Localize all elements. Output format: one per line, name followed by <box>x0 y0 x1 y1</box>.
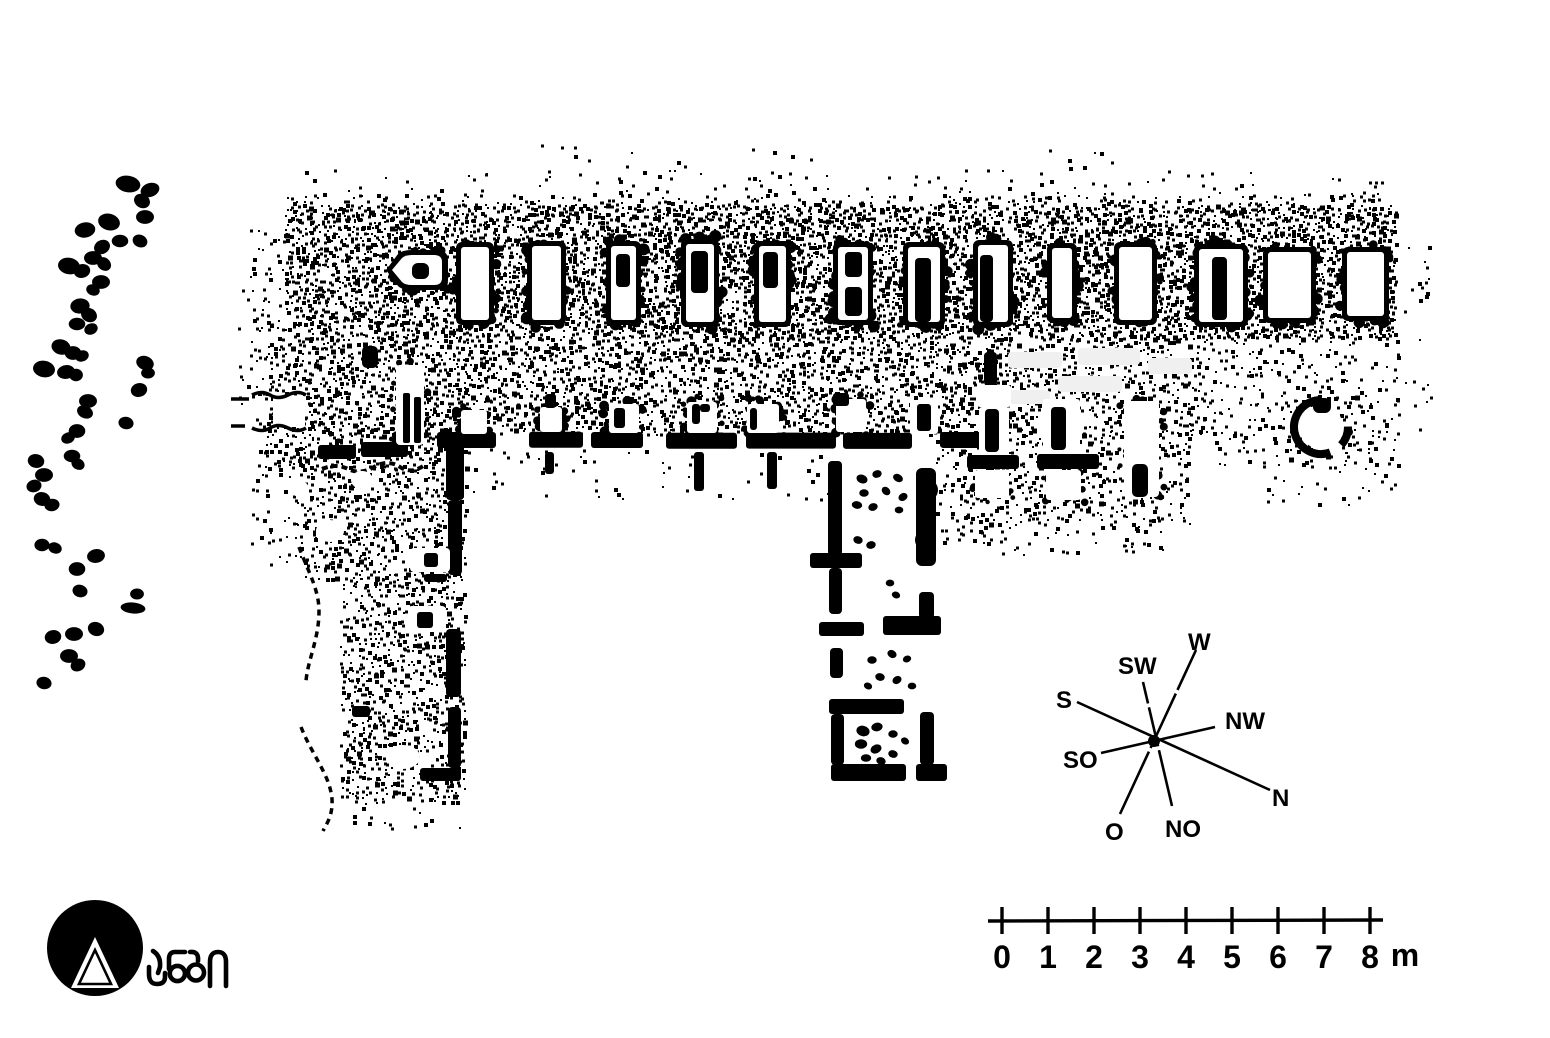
svg-text:NO: NO <box>1165 816 1201 843</box>
svg-text:5: 5 <box>1223 939 1241 975</box>
svg-text:O: O <box>1105 819 1124 846</box>
svg-text:1: 1 <box>1039 939 1057 975</box>
svg-text:SW: SW <box>1118 653 1157 680</box>
svg-text:2: 2 <box>1085 939 1103 975</box>
svg-text:3: 3 <box>1131 939 1149 975</box>
svg-text:S: S <box>1056 687 1072 714</box>
svg-text:NW: NW <box>1225 708 1265 735</box>
svg-text:0: 0 <box>993 939 1011 975</box>
svg-text:6: 6 <box>1269 939 1287 975</box>
svg-text:7: 7 <box>1315 939 1333 975</box>
svg-text:W: W <box>1188 629 1211 656</box>
svg-text:8: 8 <box>1361 939 1379 975</box>
svg-text:4: 4 <box>1177 939 1195 975</box>
svg-text:N: N <box>1272 785 1289 812</box>
svg-text:m: m <box>1391 937 1419 973</box>
svg-text:SO: SO <box>1063 747 1098 774</box>
